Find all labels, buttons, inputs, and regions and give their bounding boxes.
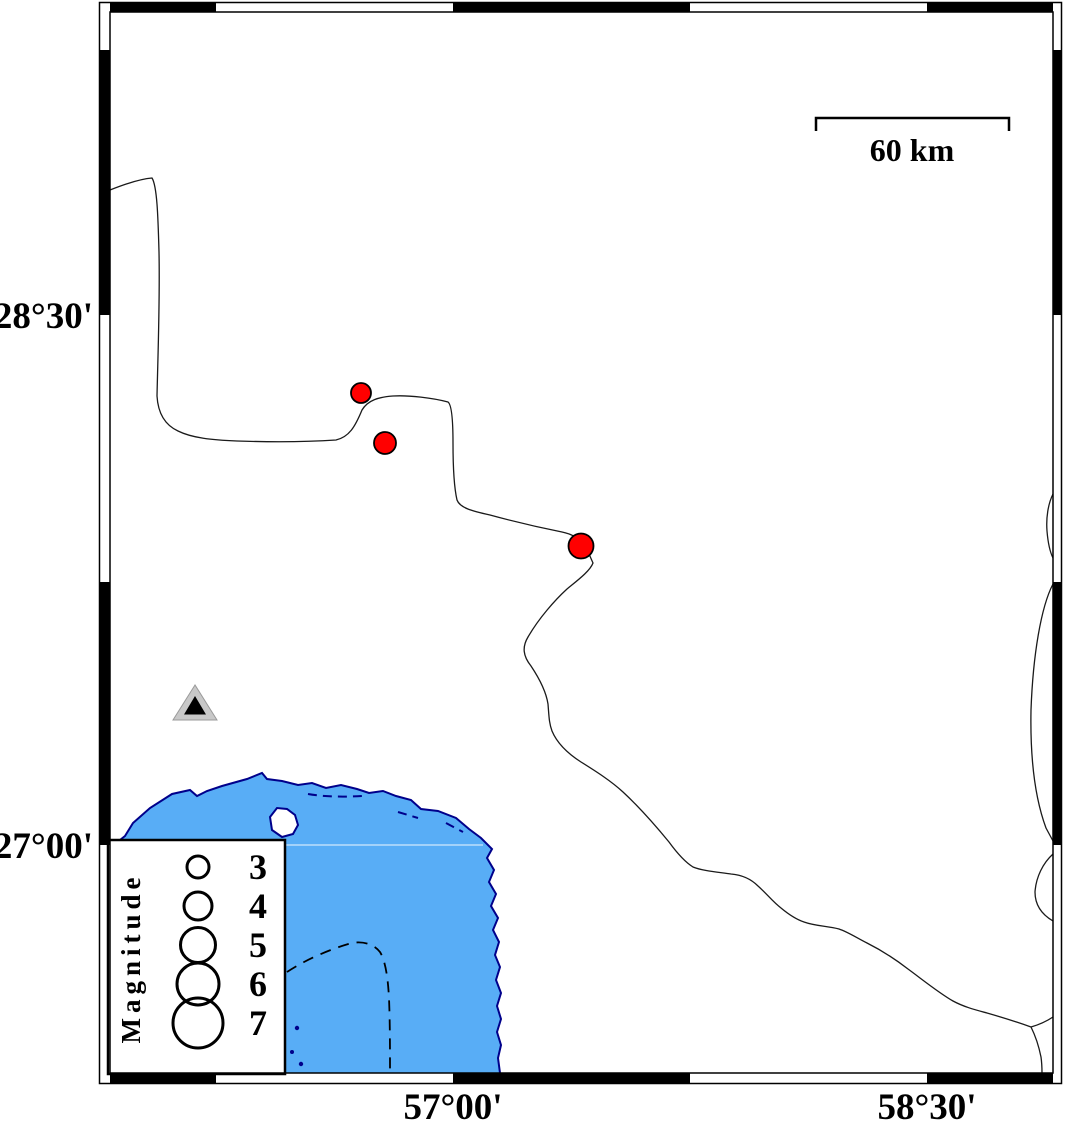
map-page: 60 km Magnitude 3 4 5 6 7 [0, 0, 1066, 1123]
frame-segment [110, 1074, 216, 1084]
frame-segment [453, 3, 690, 12]
islet [299, 1062, 303, 1066]
earthquake-markers [351, 383, 594, 559]
islet [295, 1026, 299, 1030]
scale-bar-bracket [816, 118, 1009, 131]
legend-value-m7: 7 [249, 1003, 267, 1043]
legend-value-m5: 5 [249, 925, 267, 965]
legend-circle-m4 [184, 892, 212, 920]
islet [290, 1050, 294, 1054]
legend-title: Magnitude [116, 872, 146, 1043]
magnitude-legend: Magnitude 3 4 5 6 7 [108, 840, 285, 1074]
lon-label-5700: 57°00' [403, 1087, 502, 1123]
station-marker [173, 685, 217, 720]
lat-label-2700: 27°00' [0, 826, 93, 867]
earthquake-marker [374, 432, 396, 454]
legend-value-m4: 4 [249, 886, 267, 926]
frame-segment [100, 582, 110, 845]
frame-segment [927, 1074, 1053, 1084]
legend-value-m6: 6 [249, 964, 267, 1004]
legend-circle-m3 [187, 856, 209, 878]
earthquake-marker [351, 383, 371, 403]
earthquake-marker [569, 534, 594, 559]
frame-segment [110, 3, 216, 12]
scale-bar-label: 60 km [870, 132, 955, 168]
lat-label-2830: 28°30' [0, 296, 93, 337]
frame-segment [453, 1074, 690, 1084]
frame-segment [100, 50, 110, 315]
legend-value-m3: 3 [249, 847, 267, 887]
lon-label-5830: 58°30' [877, 1087, 976, 1123]
frame-segment [927, 3, 1053, 12]
frame-segment [1053, 582, 1062, 845]
frame-segment [1053, 50, 1062, 315]
scale-bar: 60 km [816, 118, 1009, 168]
map-canvas: 60 km Magnitude 3 4 5 6 7 [0, 0, 1066, 1123]
